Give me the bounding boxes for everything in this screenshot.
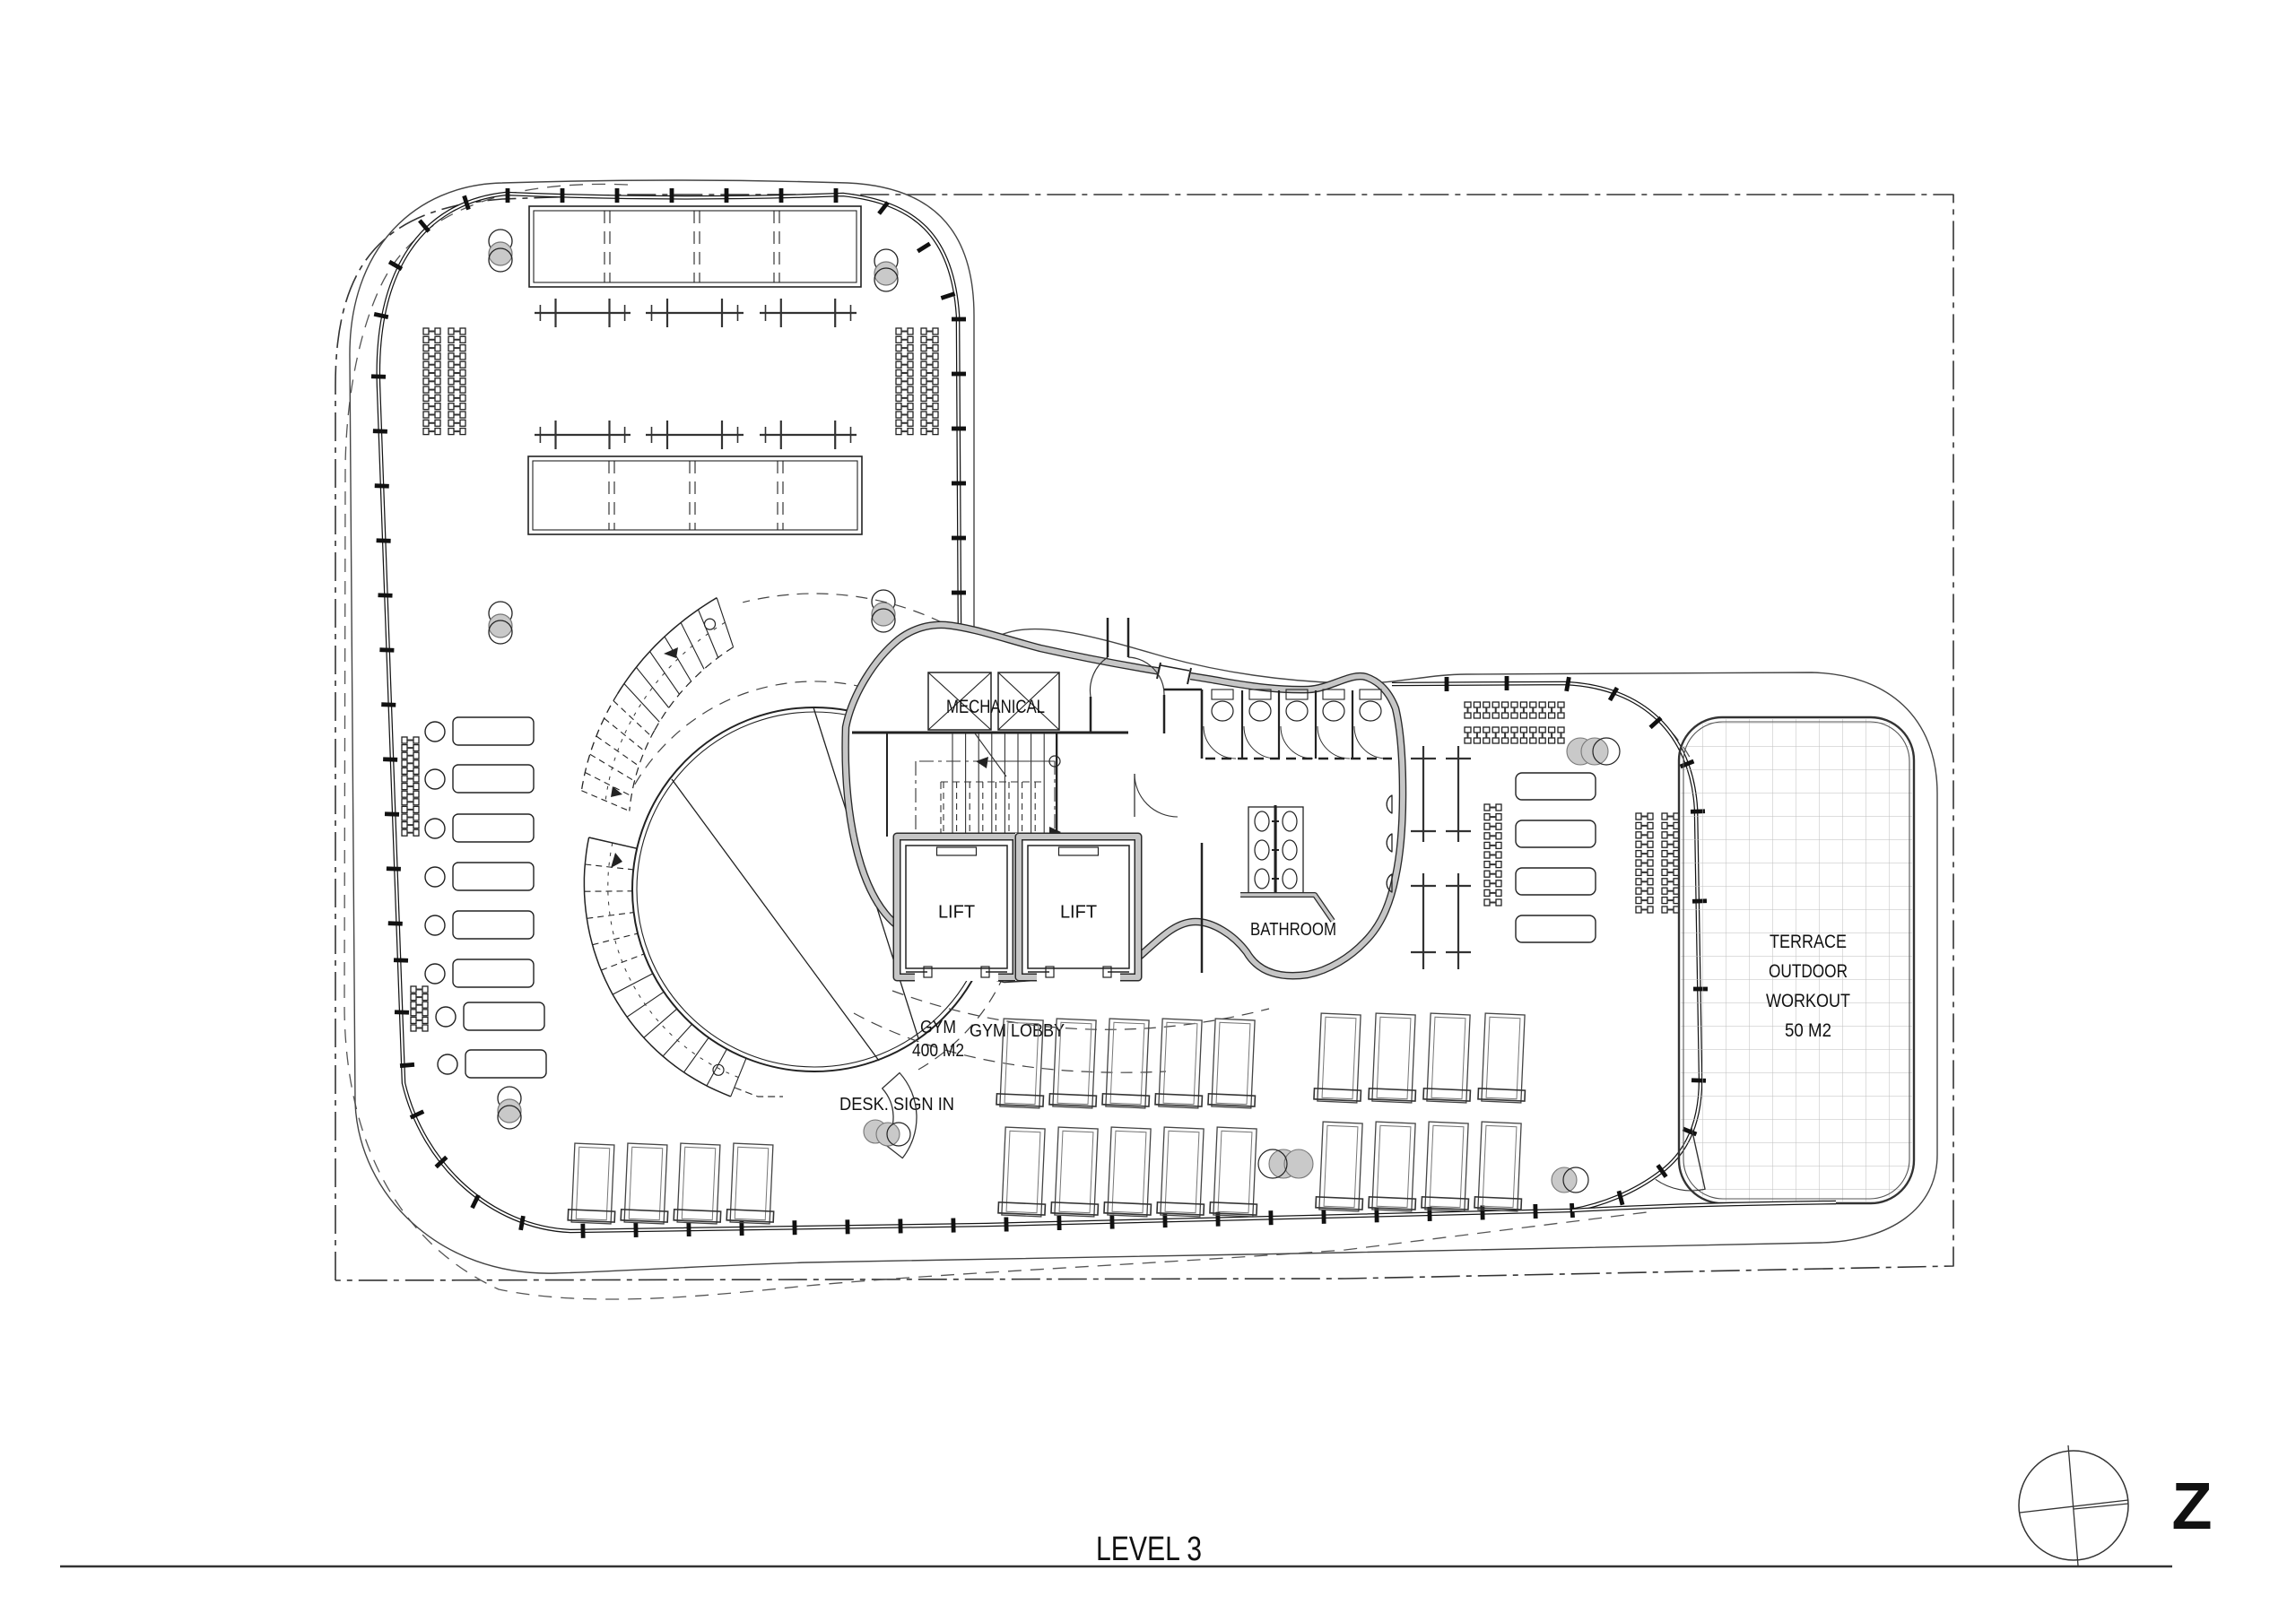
svg-text:GYM: GYM [920, 1018, 956, 1037]
svg-text:MECHANICAL: MECHANICAL [946, 697, 1045, 717]
svg-text:TERRACE: TERRACE [1770, 932, 1847, 952]
svg-text:50 M2: 50 M2 [1785, 1020, 1831, 1041]
svg-text:BATHROOM: BATHROOM [1250, 920, 1336, 940]
svg-text:OUTDOOR: OUTDOOR [1769, 961, 1848, 982]
svg-text:WORKOUT: WORKOUT [1766, 991, 1850, 1011]
svg-text:GYM LOBBY: GYM LOBBY [970, 1021, 1065, 1041]
svg-text:LIFT: LIFT [938, 903, 975, 923]
svg-text:400 M2: 400 M2 [912, 1041, 964, 1061]
svg-text:DESK. SIGN IN: DESK. SIGN IN [839, 1095, 954, 1115]
svg-text:LIFT: LIFT [1060, 903, 1097, 923]
svg-text:LEVEL 3: LEVEL 3 [1096, 1531, 1202, 1568]
svg-text:Z: Z [2171, 1469, 2212, 1543]
